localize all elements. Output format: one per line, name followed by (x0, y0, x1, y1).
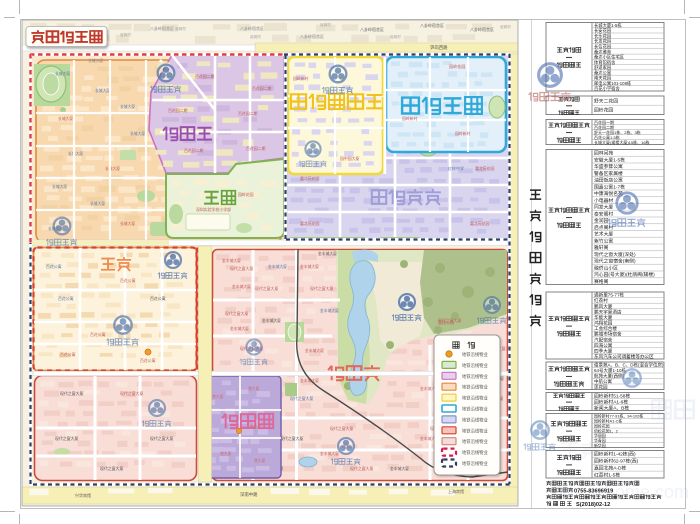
svg-text:长城大厦(裙楼大厦)15栋、16栋: 长城大厦(裙楼大厦)15栋、16栋 (594, 139, 650, 145)
svg-text:融侨山小区: 融侨山小区 (594, 264, 618, 271)
svg-text:八卦岭宿舍区: 八卦岭宿舍区 (420, 22, 444, 28)
svg-text:同发大厦: 同发大厦 (594, 204, 613, 211)
svg-text:红荔村1-5栋: 红荔村1-5栋 (594, 471, 620, 478)
svg-text:八卦岭宿舍区: 八卦岭宿舍区 (150, 25, 174, 31)
svg-text:八卦岭宿舍区: 八卦岭宿舍区 (470, 26, 494, 32)
svg-text:紫竹公寓: 紫竹公寓 (594, 237, 613, 244)
svg-text:现代之窗大厦: 现代之窗大厦 (55, 436, 78, 441)
svg-text:现代之窗大厦: 现代之窗大厦 (255, 286, 278, 291)
svg-text:长城大厦: 长城大厦 (88, 58, 103, 63)
svg-text:金丰城大厦: 金丰城大厦 (262, 318, 281, 323)
svg-text:泥岗村: 泥岗村 (500, 24, 511, 29)
svg-text:园林间苑: 园林间苑 (594, 150, 613, 157)
svg-text:地铁沿线物业: 地铁沿线物业 (462, 406, 488, 413)
svg-text:长城大厦: 长城大厦 (68, 151, 83, 156)
svg-text:现代之窗宿舍(南侧): 现代之窗宿舍(南侧) (594, 258, 636, 265)
svg-text:现代之窗大厦: 现代之窗大厦 (60, 391, 83, 396)
svg-text:金丰城大厦: 金丰城大厦 (300, 264, 319, 269)
svg-text:现代之窗大厦: 现代之窗大厦 (350, 466, 373, 471)
svg-text:港大厦: 港大厦 (254, 458, 266, 463)
svg-text:荔枝公园: 荔枝公园 (438, 319, 454, 325)
svg-text:艺术大厦: 艺术大厦 (594, 231, 613, 238)
svg-text:S(2018)02-12: S(2018)02-12 (576, 502, 610, 508)
svg-text:现代之窗大厦: 现代之窗大厦 (100, 466, 123, 471)
svg-text:百花园二期: 百花园二期 (238, 111, 258, 116)
svg-text:百花园二期: 百花园二期 (252, 86, 272, 91)
svg-text:园岭新村: 园岭新村 (402, 116, 418, 121)
svg-text:嘉园北苑A-D栋: 嘉园北苑A-D栋 (594, 465, 626, 472)
svg-text:港大厦: 港大厦 (250, 424, 262, 429)
svg-text:地铁沿线物业: 地铁沿线物业 (462, 351, 488, 358)
svg-text:八卦岭宿舍区: 八卦岭宿舍区 (360, 26, 384, 32)
svg-text:赛格阁: 赛格阁 (594, 278, 609, 285)
svg-text:泥岗村: 泥岗村 (175, 26, 186, 31)
svg-text:金丰城大厦: 金丰城大厦 (390, 466, 409, 471)
svg-text:长城大厦: 长城大厦 (58, 116, 73, 121)
svg-text:现代之窗大厦: 现代之窗大厦 (225, 311, 248, 316)
svg-text:长城大厦: 长城大厦 (90, 201, 105, 206)
svg-text:警备区家属楼: 警备区家属楼 (594, 170, 623, 177)
svg-text:金润园: 金润园 (594, 217, 609, 224)
svg-text:百花公寓: 百花公寓 (150, 296, 166, 301)
svg-text:港大厦: 港大厦 (248, 386, 260, 391)
svg-text:长城大厦: 长城大厦 (95, 88, 110, 93)
svg-text:泥岗村: 泥岗村 (250, 34, 261, 39)
svg-text:长城大厦: 长城大厦 (120, 221, 135, 226)
svg-text:现代之窗大厦: 现代之窗大厦 (230, 266, 253, 271)
svg-text:百花园二期: 百花园二期 (246, 146, 266, 151)
svg-text:华盛参茸公寓: 华盛参茸公寓 (594, 163, 623, 170)
svg-text:金丰城大厦: 金丰城大厦 (232, 284, 251, 289)
svg-text:园岭新村1-42栋(西): 园岭新村1-42栋(西) (594, 451, 636, 458)
svg-text:百花园二期: 百花园二期 (184, 148, 204, 153)
svg-text:百花公寓: 百花公寓 (120, 278, 136, 283)
svg-text:八卦岭宿舍区: 八卦岭宿舍区 (240, 25, 264, 31)
svg-text:泥岗村: 泥岗村 (120, 32, 131, 37)
svg-text:东风汽车公司调蓄楼等办公区: 东风汽车公司调蓄楼等办公区 (594, 353, 654, 360)
svg-text:百花小学宿舍: 百花小学宿舍 (594, 85, 620, 92)
svg-text:莲花园: 莲花园 (594, 384, 608, 391)
svg-text:园岭新村A1-6栋: 园岭新村A1-6栋 (594, 398, 628, 405)
svg-text:园岭新村62-97栋(西): 园岭新村62-97栋(西) (594, 458, 639, 465)
svg-text:地铁沿线物业: 地铁沿线物业 (462, 438, 488, 445)
svg-text:现代之窗大厦: 现代之窗大厦 (120, 391, 143, 396)
svg-text:百花公寓: 百花公寓 (90, 332, 106, 337)
svg-text:百花园二期: 百花园二期 (195, 74, 215, 79)
svg-text:现代之窗大厦: 现代之窗大厦 (310, 286, 333, 291)
svg-text:深南中路: 深南中路 (240, 491, 258, 498)
svg-text:园岭新村: 园岭新村 (455, 131, 471, 136)
svg-text:嘉北苑花园: 嘉北苑花园 (475, 166, 495, 171)
svg-text:港大厦: 港大厦 (212, 394, 224, 399)
svg-text:金丰城大厦: 金丰城大厦 (320, 308, 339, 313)
svg-text:现代之窗大厦: 现代之窗大厦 (330, 426, 353, 431)
svg-text:红岭中学: 红岭中学 (448, 165, 464, 171)
svg-text:启点阁村: 启点阁村 (594, 224, 613, 231)
svg-text:泥岗村: 泥岗村 (390, 34, 401, 39)
svg-text:园中园大厦: 园中园大厦 (340, 156, 360, 161)
svg-text:舒天二花园: 舒天二花园 (594, 97, 618, 104)
svg-text:港大厦: 港大厦 (220, 451, 232, 456)
svg-text:长城大厦: 长城大厦 (55, 71, 70, 76)
svg-text:金丰城大厦: 金丰城大厦 (320, 451, 339, 456)
svg-text:地铁沿线物业: 地铁沿线物业 (462, 449, 488, 456)
svg-text:深圳实验学校小学部: 深圳实验学校小学部 (196, 207, 231, 212)
svg-text:兴华宾馆: 兴华宾馆 (75, 492, 91, 498)
svg-text:八卦岭宿舍区: 八卦岭宿舍区 (300, 33, 324, 39)
svg-text:园岭花园: 园岭花园 (238, 192, 254, 197)
svg-text:地铁沿线物业: 地铁沿线物业 (462, 373, 488, 380)
svg-text:金丰城大厦: 金丰城大厦 (318, 251, 337, 256)
svg-text:bbs.szhome.com: bbs.szhome.com (553, 482, 689, 502)
svg-text:百花公寓: 百花公寓 (60, 352, 76, 357)
svg-text:百花公寓: 百花公寓 (140, 358, 156, 363)
svg-text:地铁沿线物业: 地铁沿线物业 (462, 395, 488, 402)
svg-text:地铁沿线物业: 地铁沿线物业 (462, 416, 488, 423)
svg-text:现代之窗大厦: 现代之窗大厦 (150, 436, 173, 441)
svg-text:长城大厦: 长城大厦 (120, 104, 135, 109)
svg-text:百花公寓: 百花公寓 (58, 296, 74, 301)
svg-text:油田饭店公寓: 油田饭店公寓 (594, 177, 623, 184)
svg-text:新闻大厦A、B栋: 新闻大厦A、B栋 (594, 404, 629, 411)
svg-text:小电器材: 小电器材 (594, 197, 613, 204)
svg-text:国嘉公寓1-7栋: 国嘉公寓1-7栋 (594, 183, 625, 190)
svg-text:园岭新村51-58栋: 园岭新村51-58栋 (594, 392, 630, 399)
svg-text:上海宾馆: 上海宾馆 (448, 488, 464, 494)
svg-text:金丰城大厦: 金丰城大厦 (305, 348, 324, 353)
svg-text:地铁沿线物业: 地铁沿线物业 (462, 384, 488, 391)
svg-text:安徽大厦1-5栋: 安徽大厦1-5栋 (594, 156, 625, 163)
svg-text:嘉北苑花园: 嘉北苑花园 (470, 221, 490, 226)
svg-text:长城大厦: 长城大厦 (130, 131, 145, 136)
svg-text:现代之窗大厦: 现代之窗大厦 (280, 436, 303, 441)
svg-text:百花公寓: 百花公寓 (46, 264, 62, 269)
svg-text:园岭花园: 园岭花园 (449, 63, 465, 69)
svg-text:地铁沿线物业: 地铁沿线物业 (462, 460, 488, 467)
svg-text:地铁沿线物业: 地铁沿线物业 (462, 362, 488, 369)
svg-text:金丰城大厦: 金丰城大厦 (222, 258, 241, 263)
svg-text:嘉北苑花园: 嘉北苑花园 (300, 221, 320, 226)
svg-text:笋岗西路: 笋岗西路 (430, 44, 448, 51)
svg-text:泥岗村: 泥岗村 (320, 22, 331, 27)
svg-text:百花园二期: 百花园二期 (168, 108, 188, 113)
svg-text:地铁沿线物业: 地铁沿线物业 (462, 427, 488, 434)
svg-text:长城大厦: 长城大厦 (52, 184, 67, 189)
svg-text:雅轩阁: 雅轩阁 (594, 244, 609, 251)
svg-text:金丰城大厦: 金丰城大厦 (230, 326, 249, 331)
svg-text:泰安阁村: 泰安阁村 (594, 210, 613, 217)
svg-text:嘉北苑花园: 嘉北苑花园 (300, 176, 320, 181)
svg-text:长城大厦: 长城大厦 (105, 166, 120, 171)
svg-text:园岭新村: 园岭新村 (293, 76, 309, 81)
svg-text:园岭花园: 园岭花园 (594, 107, 613, 114)
svg-text:金丰城大厦: 金丰城大厦 (268, 264, 287, 269)
svg-text:现代之窗大厦: 现代之窗大厦 (290, 396, 313, 401)
svg-text:鸿心园(号大厦)(杜鹃阁(辅楼): 鸿心园(号大厦)(杜鹃阁(辅楼) (594, 271, 655, 278)
svg-text:现代之窗大厦(深处): 现代之窗大厦(深处) (594, 251, 636, 258)
